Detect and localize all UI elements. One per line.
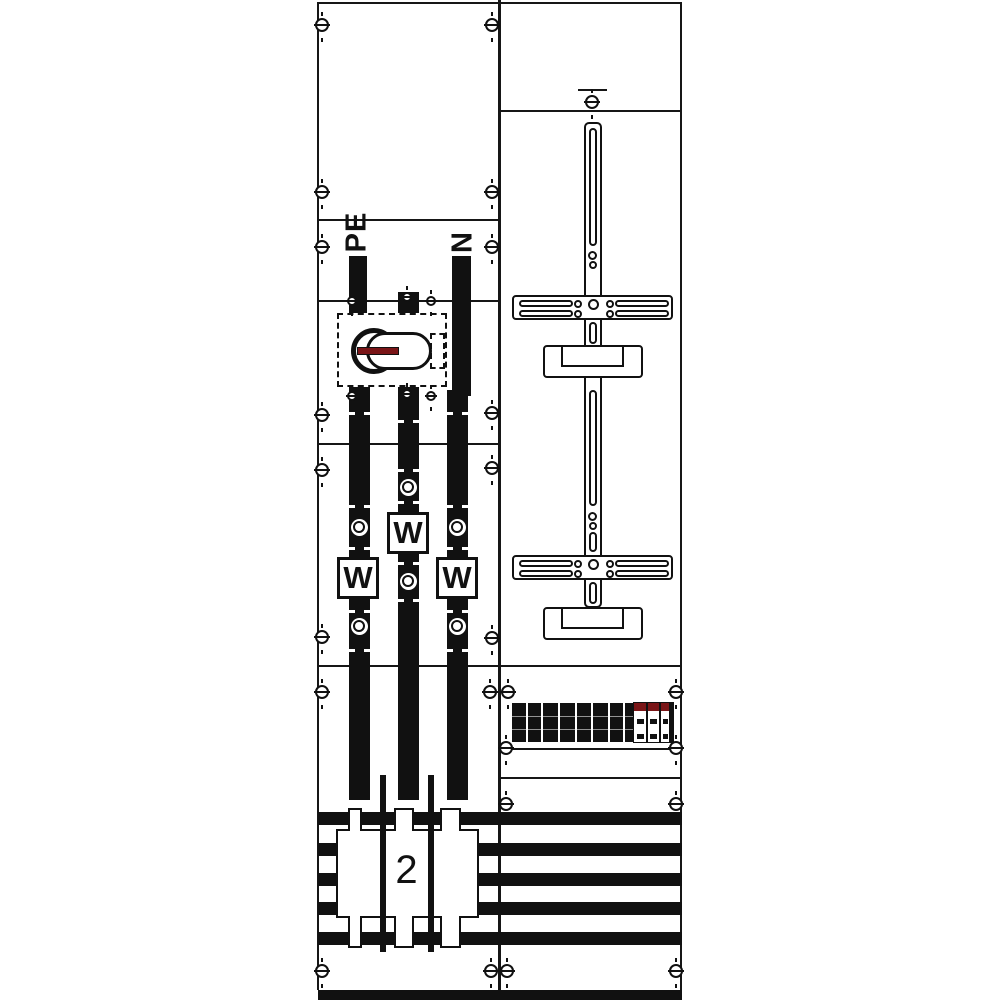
meter-panel-drawing: PE N W W W bbox=[0, 0, 1000, 1000]
busbar-row-4-stub bbox=[318, 902, 338, 915]
mounting-bracket-2 bbox=[543, 607, 643, 640]
mid-section-line bbox=[318, 665, 682, 667]
crossbar-slot bbox=[519, 300, 573, 307]
crossbar-hole bbox=[606, 310, 614, 318]
terminal-divider bbox=[623, 703, 625, 742]
screw-icon bbox=[485, 461, 499, 475]
terminal-modules bbox=[633, 702, 674, 743]
screw-icon bbox=[501, 685, 515, 699]
switch-dash-detail bbox=[430, 333, 445, 369]
connecting-rod-2 bbox=[428, 775, 434, 952]
rail-keyhole-2a bbox=[588, 512, 597, 521]
busbar-hole-icon bbox=[449, 519, 466, 536]
crossbar-slot bbox=[615, 570, 669, 577]
crossbar-slot bbox=[615, 300, 669, 307]
rail-slot-3 bbox=[589, 390, 597, 506]
bar-break-mark bbox=[447, 610, 468, 613]
terminal-divider bbox=[558, 703, 560, 742]
panel-divider bbox=[498, 0, 501, 990]
switch-handle bbox=[357, 347, 399, 355]
module-mark bbox=[637, 734, 644, 739]
crossbar-slot bbox=[519, 570, 573, 577]
screw-icon bbox=[347, 296, 357, 306]
rail-keyhole-2b bbox=[589, 522, 597, 530]
busbar-row-2 bbox=[479, 843, 682, 856]
bar-break-mark bbox=[447, 412, 468, 415]
crossbar-hole bbox=[606, 560, 614, 568]
right-section-line-3 bbox=[500, 777, 682, 779]
screw-icon bbox=[315, 964, 329, 978]
frame-left-border bbox=[317, 2, 319, 990]
screw-icon bbox=[669, 964, 683, 978]
screw-icon bbox=[426, 296, 436, 306]
crossbar-slot bbox=[615, 310, 669, 317]
rail-keyhole-1a bbox=[588, 251, 597, 260]
bar-break-mark bbox=[398, 599, 419, 602]
busbar-row-5 bbox=[318, 932, 682, 945]
rail-slot-5 bbox=[589, 582, 597, 604]
screw-icon bbox=[485, 240, 499, 254]
terminal-divider bbox=[608, 703, 610, 742]
rail-keyhole-1b bbox=[589, 261, 597, 269]
bar-break-mark bbox=[349, 547, 370, 550]
screw-icon bbox=[485, 631, 499, 645]
screw-icon bbox=[500, 964, 514, 978]
meter-box-2-label: W bbox=[393, 515, 422, 551]
screw-icon bbox=[499, 741, 513, 755]
bar-break-mark bbox=[447, 505, 468, 508]
crossbar-hole bbox=[574, 560, 582, 568]
crossbar-center-hole bbox=[588, 559, 599, 570]
screw-icon bbox=[426, 391, 436, 401]
module-mark bbox=[650, 719, 657, 724]
crossbar-hole bbox=[574, 300, 582, 308]
busbar-row-3 bbox=[479, 873, 682, 886]
screw-icon bbox=[669, 797, 683, 811]
module-mark bbox=[663, 734, 668, 739]
bracket-inner bbox=[561, 609, 624, 629]
bar-break-mark bbox=[398, 501, 419, 504]
rail-slot-1 bbox=[589, 128, 597, 246]
cover-tab bbox=[440, 808, 461, 831]
busbar-hole-icon bbox=[351, 519, 368, 536]
screw-icon bbox=[485, 185, 499, 199]
meter-box-1-label: W bbox=[343, 560, 372, 596]
busbar-row-1 bbox=[318, 812, 682, 825]
meter-box-3: W bbox=[436, 557, 478, 599]
busbar-row-2-stub bbox=[318, 843, 338, 856]
frame-right-border bbox=[680, 2, 682, 990]
screw-icon bbox=[315, 630, 329, 644]
module-mark bbox=[650, 734, 657, 739]
n-label: N bbox=[447, 231, 480, 253]
screw-icon bbox=[402, 292, 412, 302]
screw-icon bbox=[315, 408, 329, 422]
module-mark bbox=[637, 719, 644, 724]
rail-slot-2 bbox=[589, 322, 597, 344]
meter-box-1: W bbox=[337, 557, 379, 599]
screw-icon bbox=[669, 685, 683, 699]
screw-icon bbox=[484, 964, 498, 978]
terminal-divider bbox=[526, 703, 528, 742]
screw-icon bbox=[315, 240, 329, 254]
bracket-inner bbox=[561, 347, 624, 367]
busbar-hole-icon bbox=[400, 573, 417, 590]
screw-icon bbox=[485, 18, 499, 32]
terminal-red-cover bbox=[634, 703, 673, 711]
module-mark bbox=[663, 719, 668, 724]
terminal-seam bbox=[512, 729, 635, 730]
right-section-line-2 bbox=[500, 748, 682, 750]
bar-break-mark bbox=[398, 420, 419, 423]
meter-box-3-label: W bbox=[442, 560, 471, 596]
screw-icon bbox=[315, 685, 329, 699]
busbar-row-4 bbox=[479, 902, 682, 915]
screw-icon bbox=[402, 389, 412, 399]
bar-break-mark bbox=[447, 649, 468, 652]
terminal-divider bbox=[541, 703, 543, 742]
screw-icon bbox=[315, 463, 329, 477]
terminal-block bbox=[512, 703, 635, 742]
frame-bottom-bar bbox=[318, 990, 682, 1000]
screw-icon bbox=[485, 406, 499, 420]
screw-icon bbox=[669, 741, 683, 755]
bar-break-mark bbox=[398, 562, 419, 565]
crossbar-center-hole bbox=[588, 299, 599, 310]
crossbar-1 bbox=[512, 295, 673, 320]
module-divider bbox=[646, 703, 648, 742]
connecting-rod-1 bbox=[380, 775, 386, 952]
busbar-cover-label: 2 bbox=[386, 849, 427, 891]
module-divider bbox=[659, 703, 661, 742]
crossbar-hole bbox=[606, 300, 614, 308]
terminal-divider bbox=[575, 703, 577, 742]
busbar-hole-icon bbox=[351, 618, 368, 635]
terminal-divider bbox=[591, 703, 593, 742]
busbar-row-3-stub bbox=[318, 873, 338, 886]
cover-tab bbox=[440, 916, 461, 948]
mounting-bracket-1 bbox=[543, 345, 643, 378]
terminal-seam bbox=[512, 716, 635, 717]
screw-icon bbox=[347, 391, 357, 401]
cover-tab bbox=[394, 808, 414, 831]
crossbar-2 bbox=[512, 555, 673, 580]
screw-icon bbox=[483, 685, 497, 699]
bar-break-mark bbox=[349, 610, 370, 613]
screw-icon bbox=[585, 95, 599, 109]
screw-icon bbox=[499, 797, 513, 811]
screw-icon bbox=[315, 185, 329, 199]
n-busbar bbox=[452, 256, 471, 396]
pe-busbar bbox=[349, 256, 367, 316]
right-section-line-1 bbox=[500, 110, 682, 112]
bar-break-mark bbox=[349, 412, 370, 415]
crossbar-hole bbox=[574, 310, 582, 318]
cover-tab bbox=[348, 916, 362, 948]
bar-break-mark bbox=[349, 649, 370, 652]
meter-box-2: W bbox=[387, 512, 429, 554]
bar-break-mark bbox=[349, 505, 370, 508]
module-end-plate bbox=[669, 703, 673, 742]
screw-icon bbox=[315, 18, 329, 32]
busbar-hole-icon bbox=[449, 618, 466, 635]
crossbar-slot bbox=[519, 310, 573, 317]
bar-break-mark bbox=[447, 547, 468, 550]
crossbar-hole bbox=[606, 570, 614, 578]
busbar-hole-icon bbox=[400, 479, 417, 496]
crossbar-hole bbox=[574, 570, 582, 578]
bar-break-mark bbox=[398, 469, 419, 472]
rail-slot-4 bbox=[589, 532, 597, 552]
cover-tab bbox=[348, 808, 362, 831]
pe-label: PE bbox=[341, 212, 374, 253]
crossbar-slot bbox=[519, 560, 573, 567]
crossbar-slot bbox=[615, 560, 669, 567]
cover-tab bbox=[394, 916, 414, 948]
